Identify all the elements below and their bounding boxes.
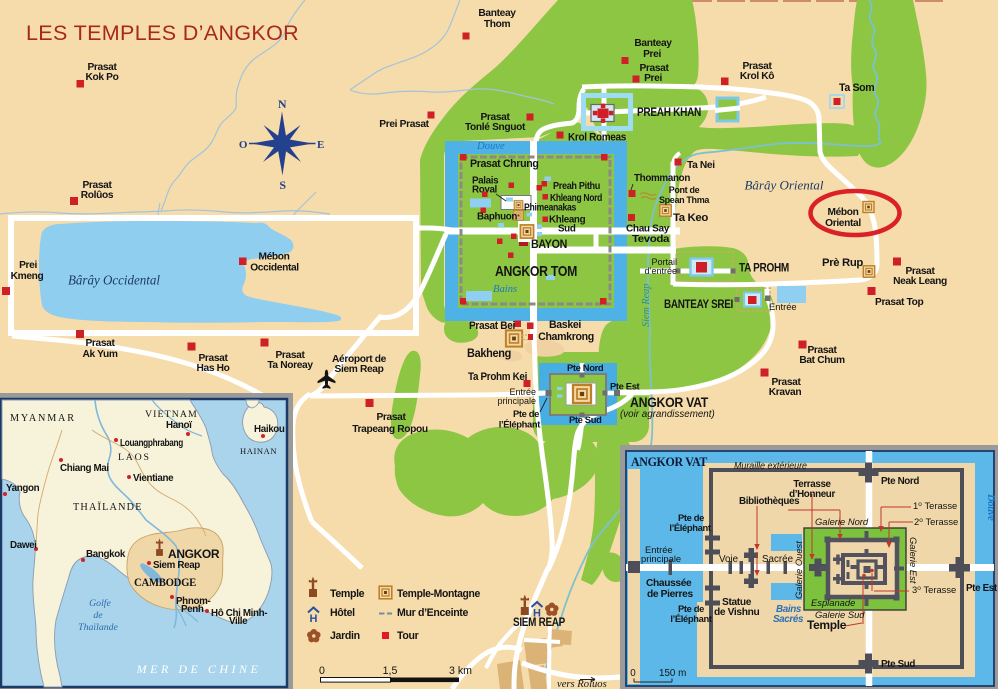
svg-text:Thaïlande: Thaïlande [78, 622, 118, 633]
svg-text:S: S [279, 178, 286, 192]
svg-text:Krol Kô: Krol Kô [740, 71, 774, 82]
svg-text:l’Éléphant: l’Éléphant [670, 613, 712, 624]
svg-text:Temple-Montagne: Temple-Montagne [397, 588, 480, 600]
svg-text:Hanoï: Hanoï [166, 420, 192, 431]
svg-text:Oriental: Oriental [825, 218, 861, 229]
svg-text:Phimeanakas: Phimeanakas [524, 203, 577, 214]
svg-text:LES TEMPLES D’ANGKOR: LES TEMPLES D’ANGKOR [26, 21, 299, 45]
svg-text:ANGKOR VAT: ANGKOR VAT [630, 394, 709, 410]
svg-text:Spean Thma: Spean Thma [659, 195, 710, 205]
svg-text:Voie: Voie [719, 554, 739, 565]
svg-text:TA PROHM: TA PROHM [739, 261, 789, 275]
svg-text:Penh: Penh [181, 604, 204, 615]
svg-text:Entrée: Entrée [769, 301, 797, 312]
svg-text:MER DE CHINE: MER DE CHINE [136, 662, 262, 676]
svg-text:Sacrés: Sacrés [773, 614, 804, 625]
svg-text:l’Éléphant: l’Éléphant [499, 419, 541, 430]
svg-text:Prè Rup: Prè Rup [822, 257, 863, 269]
svg-text:Prasat: Prasat [85, 338, 115, 349]
svg-text:Thommanon: Thommanon [634, 173, 690, 184]
svg-text:Ta Nei: Ta Nei [687, 160, 715, 171]
svg-text:Hôtel: Hôtel [330, 607, 355, 619]
svg-text:Bangkok: Bangkok [86, 549, 126, 560]
svg-text:Douve: Douve [476, 141, 505, 152]
svg-text:Mébon: Mébon [827, 207, 858, 218]
svg-text:E: E [317, 139, 324, 151]
svg-text:Krol Romeas: Krol Romeas [568, 132, 626, 144]
svg-text:Chiang Mai: Chiang Mai [60, 463, 109, 474]
svg-text:Mébon: Mébon [258, 252, 289, 263]
svg-text:Thom: Thom [484, 19, 511, 30]
svg-text:ANGKOR TOM: ANGKOR TOM [495, 263, 577, 280]
svg-text:principale: principale [497, 396, 536, 406]
svg-text:Galerie Est: Galerie Est [908, 537, 919, 584]
svg-text:Preah Pithu: Preah Pithu [553, 181, 600, 192]
svg-text:O: O [239, 139, 248, 151]
svg-text:Kok Po: Kok Po [86, 72, 119, 83]
svg-text:Sacrée: Sacrée [762, 554, 794, 565]
svg-text:Temple: Temple [807, 618, 847, 632]
svg-text:Siem Reap: Siem Reap [335, 364, 384, 375]
svg-text:0: 0 [319, 665, 325, 677]
svg-text:Prasat Bei: Prasat Bei [469, 320, 515, 332]
svg-text:principale: principale [641, 553, 681, 564]
svg-text:Kravan: Kravan [769, 387, 802, 398]
svg-text:Prei: Prei [644, 73, 662, 84]
svg-text:HAINAN: HAINAN [240, 446, 277, 456]
svg-text:BANTEAY SREI: BANTEAY SREI [664, 297, 733, 311]
svg-text:Prei: Prei [643, 49, 661, 60]
svg-text:Neak Leang: Neak Leang [893, 276, 947, 287]
svg-text:Occidental: Occidental [250, 263, 299, 274]
svg-text:Esplanade: Esplanade [811, 597, 855, 608]
svg-text:Baphuon: Baphuon [477, 212, 517, 223]
svg-text:1,5: 1,5 [383, 665, 398, 677]
svg-text:Haikou: Haikou [254, 424, 285, 435]
svg-text:Pte Nord: Pte Nord [881, 476, 919, 487]
svg-text:de Vishnu: de Vishnu [714, 607, 759, 618]
svg-text:SIEM REAP: SIEM REAP [513, 615, 565, 629]
svg-text:3 km: 3 km [449, 665, 472, 677]
svg-text:Temple: Temple [330, 588, 365, 600]
svg-text:Prei: Prei [19, 260, 37, 271]
svg-text:N: N [278, 97, 287, 111]
svg-text:Bârây Occidental: Bârây Occidental [68, 273, 160, 288]
svg-text:150 m: 150 m [659, 668, 686, 679]
svg-text:Siem Reap: Siem Reap [641, 284, 652, 327]
svg-text:d’entrée: d’entrée [644, 266, 677, 276]
svg-text:(voir agrandissement): (voir agrandissement) [620, 409, 715, 420]
svg-text:de: de [93, 610, 103, 621]
svg-text:Banteay: Banteay [478, 8, 516, 19]
svg-text:Kmeng: Kmeng [11, 271, 44, 282]
svg-text:Ta Prohm Kei: Ta Prohm Kei [468, 371, 527, 383]
svg-text:Baskei: Baskei [549, 319, 581, 331]
svg-text:Pte Sud: Pte Sud [881, 659, 915, 670]
svg-text:CAMBODGE: CAMBODGE [134, 575, 196, 589]
svg-text:Louangphrabang: Louangphrabang [120, 438, 183, 449]
svg-text:Pte Sud: Pte Sud [569, 414, 602, 425]
svg-text:Prasat: Prasat [376, 412, 406, 423]
svg-text:LAOS: LAOS [118, 452, 151, 463]
svg-text:Banteay: Banteay [634, 38, 672, 49]
svg-text:THAÏLANDE: THAÏLANDE [73, 501, 143, 513]
svg-text:Ville: Ville [229, 616, 248, 627]
svg-text:BAYON: BAYON [531, 237, 567, 251]
svg-text:Vientiane: Vientiane [133, 473, 174, 484]
svg-text:Chau Say: Chau Say [626, 224, 670, 235]
svg-text:Pte de: Pte de [513, 408, 539, 419]
svg-text:Prasat Chrung: Prasat Chrung [470, 158, 538, 170]
svg-text:Ta Keo: Ta Keo [673, 212, 708, 224]
svg-text:Bains: Bains [493, 284, 517, 295]
svg-text:0: 0 [630, 668, 636, 679]
svg-text:Pont de: Pont de [669, 185, 700, 195]
svg-text:Mur d’Enceinte: Mur d’Enceinte [397, 607, 468, 619]
svg-text:Ta Som: Ta Som [839, 82, 874, 94]
svg-text:MYANMAR: MYANMAR [10, 413, 76, 424]
svg-text:Golfe: Golfe [89, 598, 111, 609]
svg-text:Pte Est: Pte Est [610, 381, 640, 392]
svg-text:Galerie Nord: Galerie Nord [815, 516, 869, 527]
svg-text:Yangon: Yangon [6, 483, 40, 494]
svg-text:Prei Prasat: Prei Prasat [379, 119, 429, 130]
svg-text:Trapeang Ropou: Trapeang Ropou [352, 424, 428, 435]
svg-text:Muraille extérieure: Muraille extérieure [734, 461, 807, 472]
svg-text:Douve: Douve [985, 493, 996, 521]
svg-text:Siem Reap: Siem Reap [153, 560, 200, 571]
svg-text:Chamkrong: Chamkrong [538, 331, 594, 343]
svg-text:PREAH KHAN: PREAH KHAN [637, 105, 701, 119]
svg-text:vers Roluos: vers Roluos [557, 679, 607, 689]
svg-text:Sud: Sud [558, 224, 576, 235]
svg-text:Galerie Ouest: Galerie Ouest [793, 541, 804, 599]
svg-text:Rolûos: Rolûos [81, 190, 114, 201]
svg-text:Tour: Tour [397, 630, 419, 642]
svg-text:l’Éléphant: l’Éléphant [669, 522, 711, 533]
svg-text:Bakheng: Bakheng [467, 346, 511, 360]
svg-text:Tevoda: Tevoda [632, 234, 670, 245]
svg-text:Pte Est: Pte Est [966, 583, 998, 594]
svg-text:Chaussée: Chaussée [646, 578, 692, 589]
svg-text:Ak Yum: Ak Yum [82, 349, 117, 360]
svg-text:Prasat Top: Prasat Top [875, 297, 924, 308]
svg-text:Pte Nord: Pte Nord [567, 362, 604, 373]
svg-text:ANGKOR: ANGKOR [168, 547, 220, 561]
svg-text:Jardin: Jardin [330, 630, 360, 642]
svg-text:ANGKOR VAT: ANGKOR VAT [631, 455, 708, 469]
svg-text:Bibliothèques: Bibliothèques [739, 496, 800, 507]
svg-text:Bat Chum: Bat Chum [799, 355, 845, 366]
svg-text:Tonlé Snguot: Tonlé Snguot [465, 122, 526, 133]
svg-text:VIETNAM: VIETNAM [145, 409, 198, 420]
svg-text:de Pierres: de Pierres [647, 589, 693, 600]
svg-text:Bârây Oriental: Bârây Oriental [745, 179, 825, 193]
svg-text:Dawei: Dawei [10, 540, 37, 551]
svg-text:Ta Noreay: Ta Noreay [267, 360, 313, 371]
svg-text:Has Ho: Has Ho [197, 363, 230, 374]
